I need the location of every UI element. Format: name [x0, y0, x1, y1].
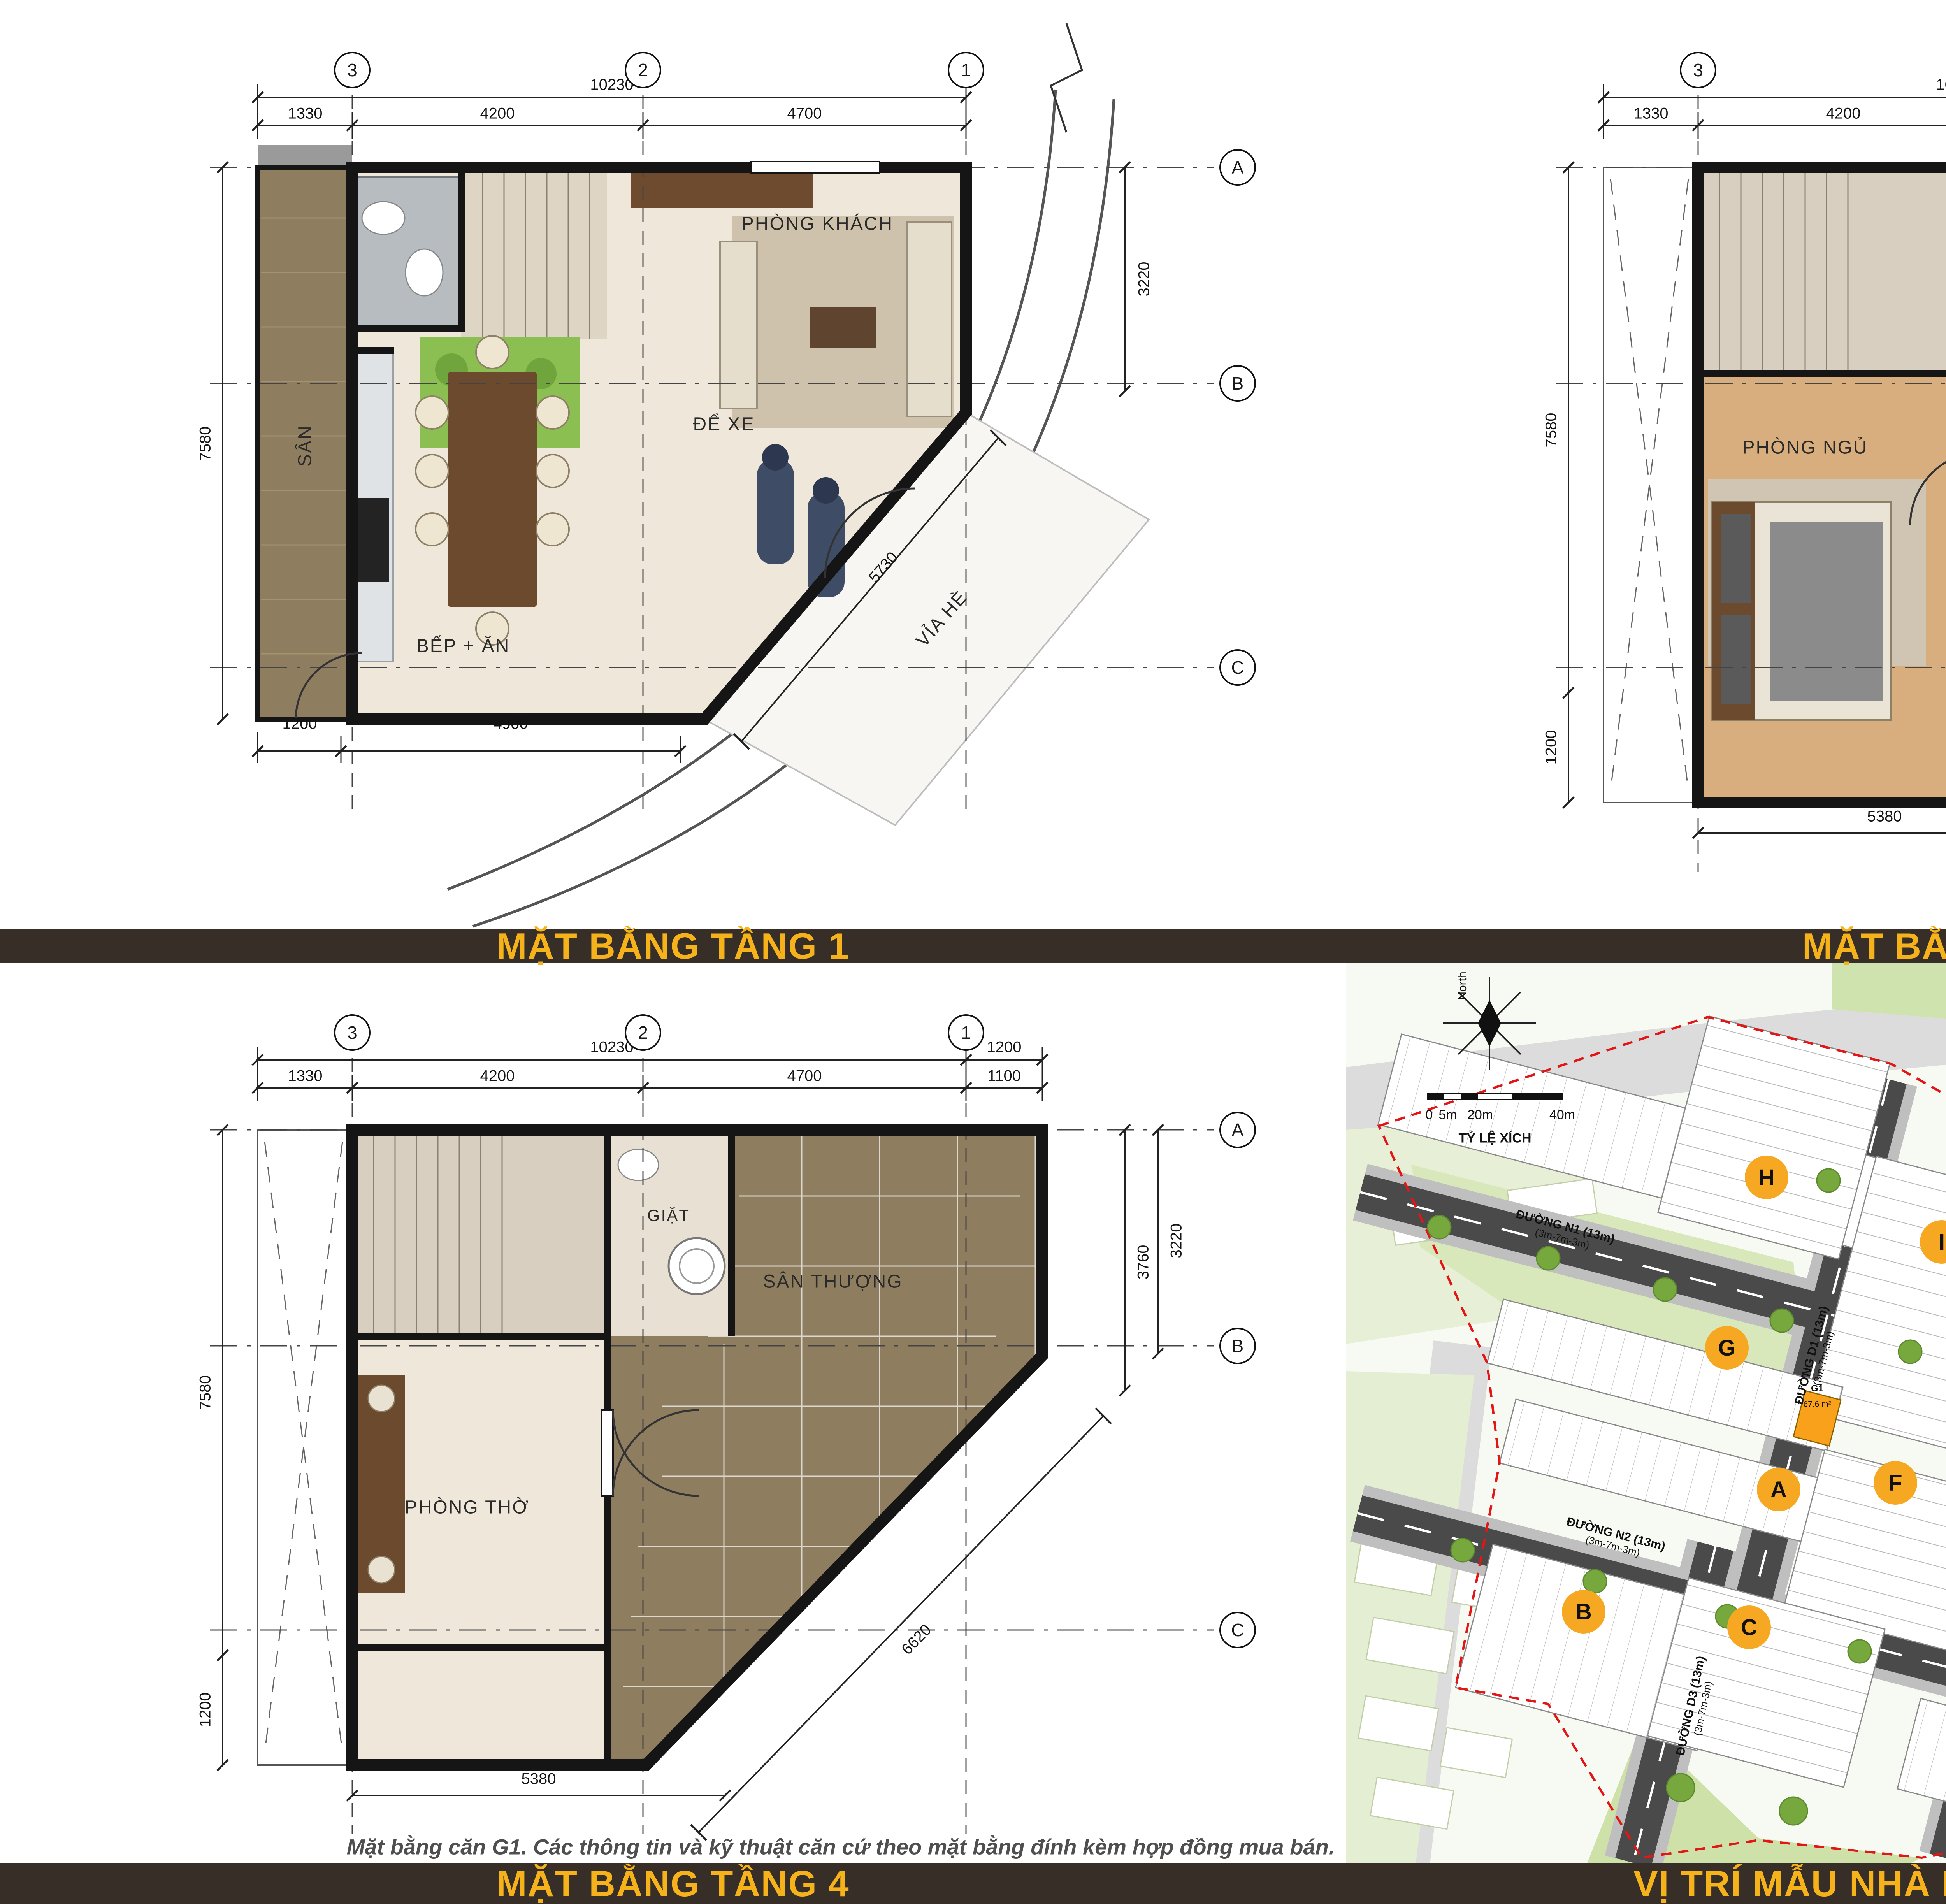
grid-bubble-B: B [1219, 365, 1256, 402]
dim-4200: 4200 [480, 1068, 515, 1085]
dim-4700: 4700 [787, 105, 822, 123]
scale-caption: TỶ LỆ XÍCH [1458, 1131, 1531, 1146]
dim-7580: 7580 [197, 427, 214, 461]
floor4-drawing [0, 963, 1346, 1863]
dim-3220: 3220 [1136, 262, 1153, 297]
grid-bubble-3: 3 [334, 1014, 371, 1051]
dim-1330: 1330 [288, 1068, 323, 1085]
dim-7580: 7580 [1543, 413, 1560, 448]
dim-3220: 3220 [1168, 1224, 1186, 1258]
block-badge-C: C [1727, 1605, 1771, 1649]
site-drawing [1346, 963, 1946, 1863]
room-living: PHÒNG KHÁCH [741, 213, 893, 235]
highlight-lot-name: G1 [1811, 1384, 1823, 1394]
scale-5m: 5m [1438, 1108, 1457, 1123]
block-badge-G: G [1705, 1326, 1749, 1370]
north-label: North [1456, 971, 1469, 1000]
room-terrace: SÂN THƯỢNG [763, 1271, 903, 1293]
grid-bubble-C: C [1219, 649, 1256, 686]
room-yard: SÂN [295, 425, 316, 467]
room-worship: PHÒNG THỜ [405, 1497, 530, 1518]
dim-1100: 1100 [987, 1068, 1021, 1085]
dim-total: 10230 [1936, 76, 1946, 94]
grid-bubble-3: 3 [334, 52, 371, 88]
floor4-title: MẶT BẰNG TẦNG 4 [0, 1863, 1346, 1904]
dim-1200-left: 1200 [197, 1693, 214, 1727]
room-laundry: GIẶT [647, 1206, 690, 1225]
dim-4200: 4200 [480, 105, 515, 123]
grid-bubble-B: B [1219, 1328, 1256, 1364]
dim-1200-top: 1200 [987, 1039, 1022, 1056]
grid-bubble-2: 2 [625, 1014, 661, 1051]
grid-bubble-A: A [1219, 1112, 1256, 1148]
floor1-drawing [0, 0, 1346, 929]
room-garage: ĐỂ XE [693, 414, 755, 435]
bottom-title-bar: MẶT BẰNG TẦNG 4 VỊ TRÍ MẪU NHÀ MG2 [0, 1863, 1946, 1904]
site-plan: North 0 5m 20m 40m TỶ LỆ XÍCH ĐƯỜNG N1 (… [1346, 963, 1946, 1863]
dim-4700: 4700 [787, 1068, 822, 1085]
room-kitchen: BẾP + ĂN [416, 636, 510, 657]
floor1-plan: 3 2 1 A B C 10230 1330 4200 4700 3220 75… [0, 0, 1346, 929]
site-title: VỊ TRÍ MẪU NHÀ MG2 [1346, 1863, 1946, 1904]
dim-1330: 1330 [1634, 105, 1669, 123]
dim-1200-left: 1200 [1543, 730, 1560, 765]
scale-0: 0 [1426, 1108, 1433, 1123]
floorplan-caption: Mặt bằng căn G1. Các thông tin và kỹ thu… [347, 1834, 1335, 1860]
grid-bubble-A: A [1219, 149, 1256, 186]
floor23-plan: 3 2 1 A B C 10230 1200 1330 4200 4700 11… [1346, 0, 1946, 929]
grid-bubble-1: 1 [948, 1014, 984, 1051]
dim-1200: 1200 [283, 715, 317, 733]
grid-bubble-3: 3 [1680, 52, 1716, 88]
drawing-sheet: 3 2 1 A B C 10230 1330 4200 4700 3220 75… [0, 0, 1946, 1904]
floor23-drawing [1346, 0, 1946, 929]
grid-bubble-2: 2 [625, 52, 661, 88]
dim-1330: 1330 [288, 105, 323, 123]
floor1-title: MẶT BẰNG TẦNG 1 [0, 929, 1346, 963]
dim-4200: 4200 [1826, 105, 1861, 123]
dim-5380: 5380 [522, 1771, 556, 1788]
room-bedroom: PHÒNG NGỦ [1742, 437, 1868, 458]
floor23-title: MẶT BẰNG TẦNG 2 → 3 [1346, 929, 1946, 963]
block-badge-B: B [1562, 1590, 1605, 1634]
block-badge-H: H [1745, 1156, 1788, 1199]
floor4-plan: 3 2 1 A B C 10230 1200 1330 4200 4700 11… [0, 963, 1346, 1863]
scale-20m: 20m [1467, 1108, 1493, 1123]
scale-40m: 40m [1549, 1108, 1575, 1123]
grid-bubble-1: 1 [948, 52, 984, 88]
block-badge-F: F [1874, 1461, 1917, 1505]
dim-4900: 4900 [494, 715, 528, 733]
dim-5380: 5380 [1867, 808, 1902, 826]
block-badge-A: A [1757, 1468, 1800, 1511]
dim-3760: 3760 [1135, 1245, 1152, 1280]
highlight-lot-area: 67.6 m² [1803, 1400, 1831, 1409]
dim-7580: 7580 [197, 1375, 214, 1410]
mid-title-bar: MẶT BẰNG TẦNG 1 MẶT BẰNG TẦNG 2 → 3 [0, 929, 1946, 963]
grid-bubble-C: C [1219, 1612, 1256, 1648]
